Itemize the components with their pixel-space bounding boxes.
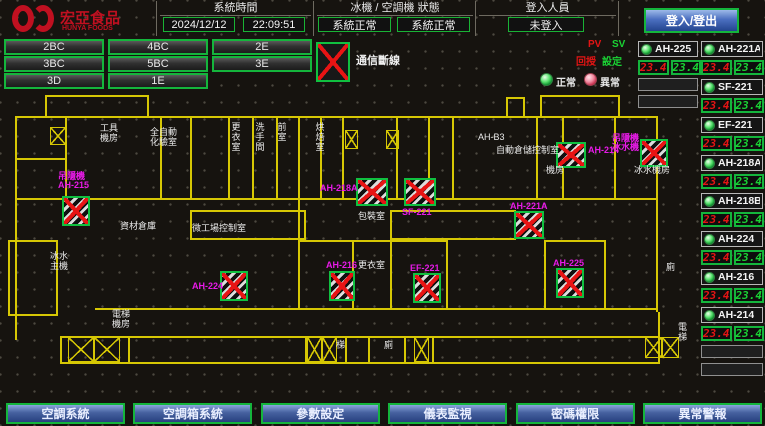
comm-loss-icon: [316, 42, 350, 82]
logo-subtext: HUNYA FOODS: [62, 25, 113, 32]
wall-segment: [190, 238, 306, 240]
map-unit-icon-AH-221A[interactable]: [514, 211, 544, 239]
stair-marker-icon: [645, 337, 662, 358]
map-unit-label: SF-221: [402, 208, 432, 217]
header-separator: [156, 1, 157, 36]
wall-segment: [190, 116, 192, 200]
floor-button-2BC[interactable]: 2BC: [4, 39, 104, 55]
room-label: 全自動 化驗室: [150, 128, 177, 147]
floor-button-3D[interactable]: 3D: [4, 73, 104, 89]
unit-led-icon: [704, 82, 715, 93]
wall-segment: [190, 210, 306, 212]
wall-segment: [15, 158, 67, 160]
empty-slot-box: [638, 95, 698, 108]
wall-segment: [536, 116, 538, 200]
unit-name: AH-218B: [718, 195, 760, 207]
map-unit-icon-EF-221[interactable]: [413, 273, 441, 303]
room-label: 更衣室: [230, 122, 240, 152]
room-label: 自動倉儲控制室: [496, 146, 559, 156]
room-label: 電 梯: [678, 323, 687, 342]
map-unit-icon-AH-218A[interactable]: [356, 178, 388, 206]
abnormal-led-icon: [584, 73, 597, 86]
floor-button-5BC[interactable]: 5BC: [108, 56, 208, 72]
unit-sv-value: 23.4: [734, 136, 765, 151]
map-unit-label: AH-221A: [510, 202, 548, 211]
abnormal-label: 異常: [600, 74, 620, 89]
stair-marker-icon: [307, 337, 322, 362]
normal-label: 正常: [556, 74, 576, 89]
room-label: 電梯 機房: [112, 310, 130, 329]
room-label: 微工場控制室: [192, 224, 246, 234]
unit-pv-value: 23.4: [701, 288, 732, 303]
unit-led-icon: [704, 158, 715, 169]
unit-led-icon: [704, 310, 715, 321]
stair-marker-icon: [386, 130, 399, 149]
chiller-status-box: 系統正常: [318, 17, 391, 32]
map-unit-label: 吊隱機 AH-215: [58, 172, 89, 190]
stair-marker-icon: [662, 337, 679, 358]
unit-name: AH-214: [718, 309, 754, 321]
logo: 宏亞食品 HUNYA FOODS: [8, 2, 156, 36]
header-separator: [475, 1, 476, 36]
unit-row-AH-218B[interactable]: AH-218B: [701, 193, 763, 209]
bottom-nav-密碼權限[interactable]: 密碼權限: [516, 403, 635, 424]
room-label: 廁: [666, 263, 675, 273]
wall-segment: [540, 95, 620, 97]
stair-marker-icon: [50, 127, 66, 145]
unit-sv-value: 23.4: [734, 288, 765, 303]
wall-segment: [128, 336, 130, 364]
floor-button-2E[interactable]: 2E: [212, 39, 312, 55]
comm-loss-label: 通信斷線: [356, 52, 400, 68]
unit-pv-value: 23.4: [701, 250, 732, 265]
header-separator: [313, 1, 314, 36]
unit-sv-value: 23.4: [734, 212, 765, 227]
room-label: 冰水 主機: [50, 252, 68, 271]
unit-sv-value: 23.4: [734, 98, 765, 113]
unit-row-SF-221[interactable]: SF-221: [701, 79, 763, 95]
wall-segment: [304, 210, 306, 240]
unit-values-AH-225: 23.423.4: [638, 60, 698, 75]
room-label: 洗手間: [254, 122, 264, 152]
unit-pv-value: 23.4: [638, 60, 669, 75]
unit-led-icon: [704, 196, 715, 207]
unit-name: AH-216: [718, 271, 754, 283]
wall-segment: [8, 314, 58, 316]
empty-slot-box: [701, 345, 763, 358]
unit-pv-value: 23.4: [701, 98, 732, 113]
unit-row-AH-216[interactable]: AH-216: [701, 269, 763, 285]
wall-segment: [396, 116, 398, 200]
room-label: 包裝室: [358, 212, 385, 222]
login-status-box: 未登入: [508, 17, 584, 32]
wall-segment: [8, 240, 58, 242]
wall-segment: [618, 95, 620, 118]
unit-row-AH-214[interactable]: AH-214: [701, 307, 763, 323]
normal-led-icon: [540, 73, 553, 86]
logo-ring-icon: [32, 5, 54, 32]
bottom-nav-空調箱系統[interactable]: 空調箱系統: [133, 403, 252, 424]
stair-marker-icon: [322, 337, 337, 362]
unit-row-AH-224[interactable]: AH-224: [701, 231, 763, 247]
empty-slot-box: [638, 78, 698, 91]
map-unit-icon-AH-224[interactable]: [220, 271, 248, 301]
map-unit-icon-吊隱機-冰水機[interactable]: [640, 139, 668, 167]
sv-sub-label: 設定: [602, 53, 622, 68]
sv-label: SV: [612, 39, 625, 50]
system-clock: 22:09:51: [243, 17, 305, 32]
unit-name: AH-221A: [718, 43, 760, 55]
map-unit-label: AH-225: [553, 259, 584, 268]
unit-values-SF-221: 23.423.4: [701, 98, 763, 113]
unit-led-icon: [641, 44, 652, 55]
unit-sv-value: 23.4: [734, 326, 765, 341]
unit-sv-value: 23.4: [734, 174, 765, 189]
stair-marker-icon: [414, 337, 429, 362]
wall-segment: [15, 198, 658, 200]
room-label: 廁: [384, 341, 393, 351]
unit-led-icon: [704, 272, 715, 283]
room-label: 前室: [276, 122, 286, 142]
wall-segment: [432, 336, 434, 364]
room-label: 機房: [546, 166, 564, 176]
wall-segment: [45, 95, 149, 97]
stair-marker-icon: [345, 130, 358, 149]
floor-button-4BC[interactable]: 4BC: [108, 39, 208, 55]
header-separator: [618, 1, 619, 36]
unit-pv-value: 23.4: [701, 136, 732, 151]
bottom-nav-空調系統[interactable]: 空調系統: [6, 403, 125, 424]
wall-segment: [95, 308, 658, 310]
wall-segment: [8, 240, 10, 316]
floor-button-3E[interactable]: 3E: [212, 56, 312, 72]
unit-sv-value: 23.4: [671, 60, 702, 75]
wall-segment: [298, 240, 448, 242]
wall-segment: [452, 116, 454, 200]
floor-button-1E[interactable]: 1E: [108, 73, 208, 89]
wall-segment: [60, 362, 660, 364]
floor-button-3BC[interactable]: 3BC: [4, 56, 104, 72]
wall-segment: [60, 336, 660, 338]
wall-segment: [390, 240, 392, 308]
wall-segment: [390, 210, 392, 240]
unit-row-AH-218A[interactable]: AH-218A: [701, 155, 763, 171]
wall-segment: [368, 336, 370, 364]
stair-marker-icon: [94, 337, 120, 362]
unit-pv-value: 23.4: [701, 326, 732, 341]
wall-segment: [45, 95, 47, 118]
map-unit-icon-SF-221[interactable]: [404, 178, 436, 206]
map-unit-icon-AH-216[interactable]: [329, 271, 355, 301]
map-unit-label: AH-224: [192, 282, 223, 291]
room-label: 梯: [336, 341, 345, 351]
room-label: 資材倉庫: [120, 222, 156, 232]
unit-values-AH-218A: 23.423.4: [701, 174, 763, 189]
unit-pv-value: 23.4: [701, 212, 732, 227]
hmi-screen: 宏亞食品 HUNYA FOODS 系統時間 2024/12/12 22:09:5…: [0, 0, 765, 426]
map-unit-icon-AH-225[interactable]: [556, 268, 584, 298]
wall-segment: [147, 95, 149, 118]
unit-led-icon: [704, 120, 715, 131]
unit-pv-value: 23.4: [701, 60, 732, 75]
wall-segment: [523, 97, 525, 118]
map-unit-label: EF-221: [410, 264, 440, 273]
unit-values-AH-216: 23.423.4: [701, 288, 763, 303]
room-label: 冰水機房: [634, 166, 670, 176]
empty-slot-box: [701, 363, 763, 376]
unit-sv-value: 23.4: [734, 250, 765, 265]
login-user-label: 登入人員: [479, 2, 616, 14]
wall-segment: [298, 116, 300, 200]
room-label: AH-B3: [478, 133, 505, 143]
wall-segment: [446, 240, 448, 308]
room-label: 烘焙室: [314, 122, 324, 152]
unit-led-icon: [704, 44, 715, 55]
unit-name: AH-218A: [718, 157, 760, 169]
wall-segment: [540, 95, 542, 118]
unit-led-icon: [704, 234, 715, 245]
pv-label: PV: [588, 39, 601, 50]
bottom-nav-儀表監視[interactable]: 儀表監視: [388, 403, 507, 424]
wall-segment: [544, 240, 606, 242]
unit-name: AH-225: [655, 43, 691, 55]
map-unit-label: AH-218A: [320, 184, 358, 193]
wall-segment: [604, 240, 606, 308]
bottom-nav-參數設定[interactable]: 參數設定: [261, 403, 380, 424]
logo-ring-icon: [12, 5, 34, 32]
machine-status-label: 冰機 / 空調機 狀態: [316, 2, 474, 14]
unit-name: EF-221: [718, 119, 752, 131]
unit-row-AH-225[interactable]: AH-225: [638, 41, 698, 57]
map-unit-label: AH-216: [326, 261, 357, 270]
unit-values-EF-221: 23.423.4: [701, 136, 763, 151]
wall-segment: [404, 336, 406, 364]
pv-sub-label: 回授: [576, 53, 596, 68]
unit-values-AH-214: 23.423.4: [701, 326, 763, 341]
room-label: 更衣室: [358, 261, 385, 271]
wall-segment: [544, 240, 546, 308]
wall-segment: [345, 336, 347, 364]
room-label: 工具 機房: [100, 124, 118, 143]
login-logout-button[interactable]: 登入/登出: [644, 8, 739, 33]
ahu-status-box: 系統正常: [397, 17, 470, 32]
unit-name: AH-224: [718, 233, 754, 245]
wall-segment: [614, 116, 616, 200]
system-time-label: 系統時間: [160, 2, 311, 14]
unit-values-AH-221A: 23.423.4: [701, 60, 763, 75]
unit-name: SF-221: [718, 81, 752, 93]
unit-sv-value: 23.4: [734, 60, 765, 75]
unit-pv-value: 23.4: [701, 174, 732, 189]
stair-marker-icon: [68, 337, 94, 362]
unit-values-AH-224: 23.423.4: [701, 250, 763, 265]
unit-values-AH-218B: 23.423.4: [701, 212, 763, 227]
wall-segment: [506, 97, 508, 118]
system-date: 2024/12/12: [163, 17, 235, 32]
bottom-nav-異常警報[interactable]: 異常警報: [643, 403, 762, 424]
header-underline: [160, 15, 311, 16]
wall-segment: [15, 116, 17, 340]
unit-row-AH-221A[interactable]: AH-221A: [701, 41, 763, 57]
map-unit-label: 吊隱機 冰水機: [612, 134, 639, 152]
wall-segment: [298, 198, 300, 310]
unit-row-EF-221[interactable]: EF-221: [701, 117, 763, 133]
wall-segment: [60, 336, 62, 364]
map-unit-icon-吊隱機-AH-215[interactable]: [62, 196, 90, 226]
